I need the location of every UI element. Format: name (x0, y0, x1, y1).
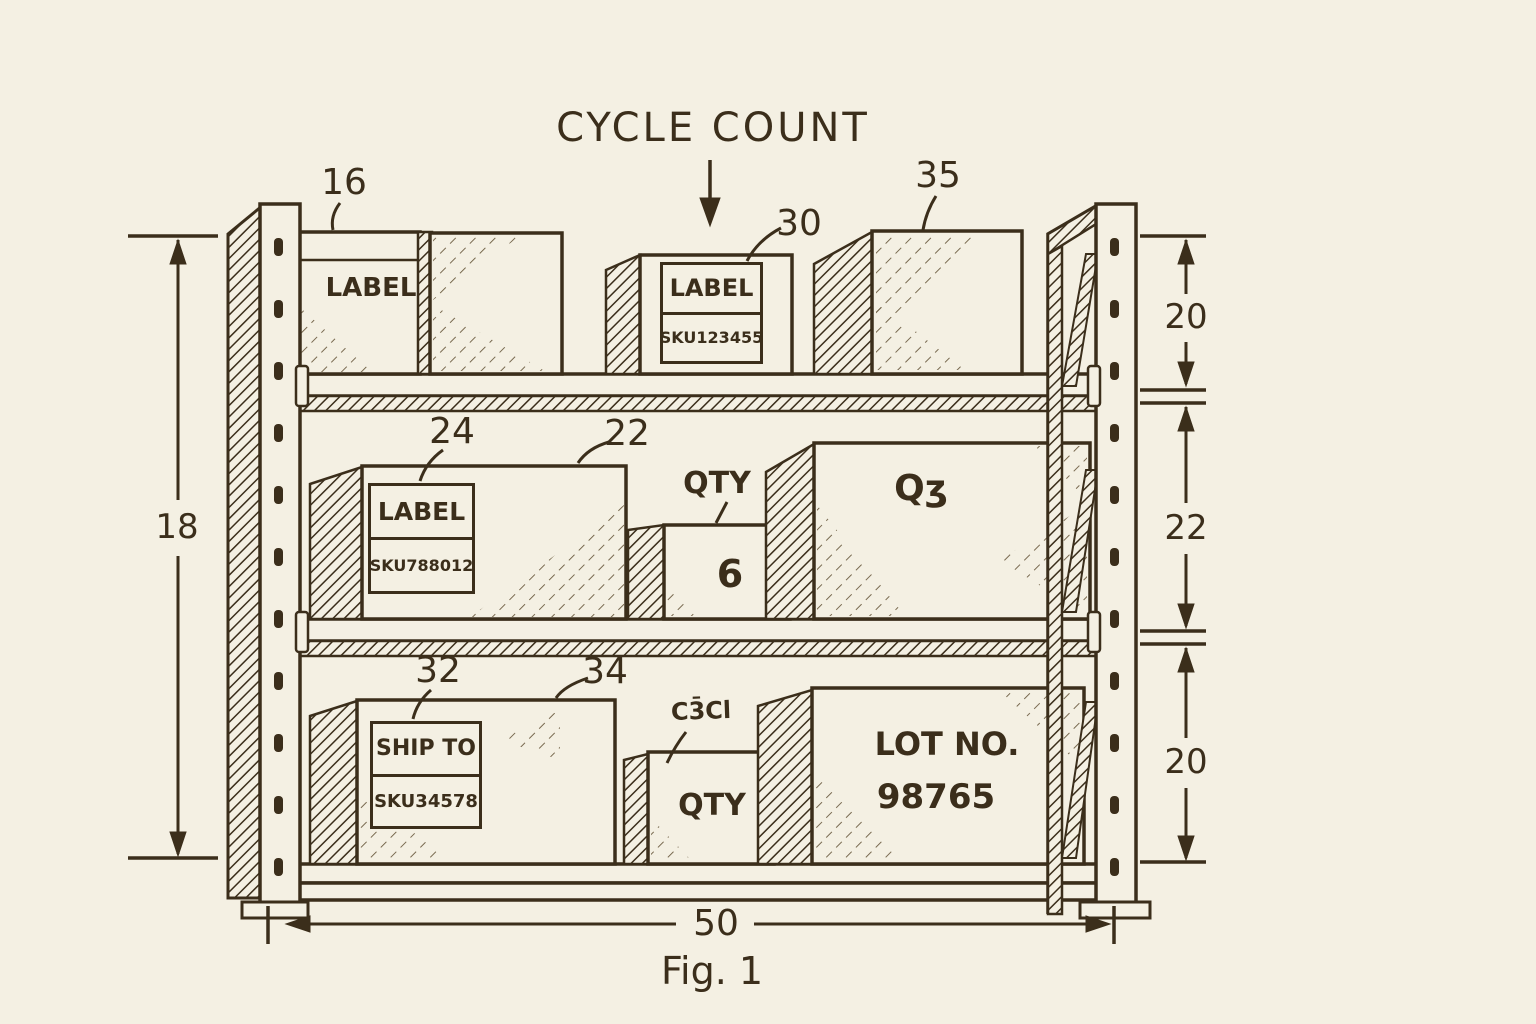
ref-30: 30 (776, 206, 822, 242)
shelf-beam-bottom (284, 864, 1112, 900)
dim-middle-tier: 22 (1164, 511, 1207, 545)
dim-overall-height: 18 (155, 510, 198, 544)
dimension-width-50 (268, 906, 1114, 944)
qty-bottom-caption: QTY (678, 791, 746, 821)
box32-label-title: SHIP TO (373, 724, 479, 774)
box30-sku: SKU123455 (663, 312, 760, 362)
box32-sku: SKU34578 (373, 774, 479, 827)
line-art (0, 0, 1536, 1024)
ref-35: 35 (915, 158, 961, 194)
box32-label: SHIP TO SKU34578 (370, 721, 482, 829)
box-35 (814, 231, 1022, 374)
left-post (228, 204, 308, 918)
dim-top-tier: 20 (1164, 300, 1207, 334)
ref-22: 22 (604, 416, 650, 452)
qty-bottom-scribble: C3̄Cl (671, 698, 732, 724)
figure-title: CYCLE COUNT (556, 108, 870, 148)
shelf-beam-top (284, 374, 1112, 411)
cycle-count-arrow (700, 160, 720, 226)
dimension-height-18 (128, 236, 218, 858)
box30-label-title: LABEL (663, 265, 760, 312)
leader-35 (923, 196, 936, 230)
ref-34: 34 (582, 654, 628, 690)
figure-caption: Fig. 1 (661, 952, 763, 990)
box24-sku: SKU788012 (371, 537, 472, 591)
lot-line2: 98765 (877, 780, 995, 814)
dim-overall-width: 50 (693, 906, 739, 942)
leader-qty-middle (716, 502, 727, 523)
dim-bottom-tier: 20 (1164, 745, 1207, 779)
box-16 (292, 232, 432, 374)
ref-16: 16 (321, 165, 367, 201)
box16-label-text: LABEL (326, 275, 417, 301)
qty-middle-value: 6 (717, 555, 743, 593)
ref-24: 24 (429, 414, 475, 450)
patent-figure: CYCLE COUNT 16 30 35 24 22 32 34 18 20 2… (0, 0, 1536, 1024)
box30-label: LABEL SKU123455 (660, 262, 763, 364)
shelf-beam-middle (284, 619, 1112, 656)
box24-label-title: LABEL (371, 486, 472, 537)
ref-32: 32 (415, 653, 461, 689)
leader-16 (332, 203, 340, 230)
box-q-text: Qʒ (894, 471, 948, 507)
qty-middle-caption: QTY (683, 469, 751, 499)
box-top-second (430, 233, 562, 374)
box-lot (758, 688, 1084, 864)
box24-label: LABEL SKU788012 (368, 483, 475, 594)
lot-line1: LOT NO. (875, 728, 1020, 760)
